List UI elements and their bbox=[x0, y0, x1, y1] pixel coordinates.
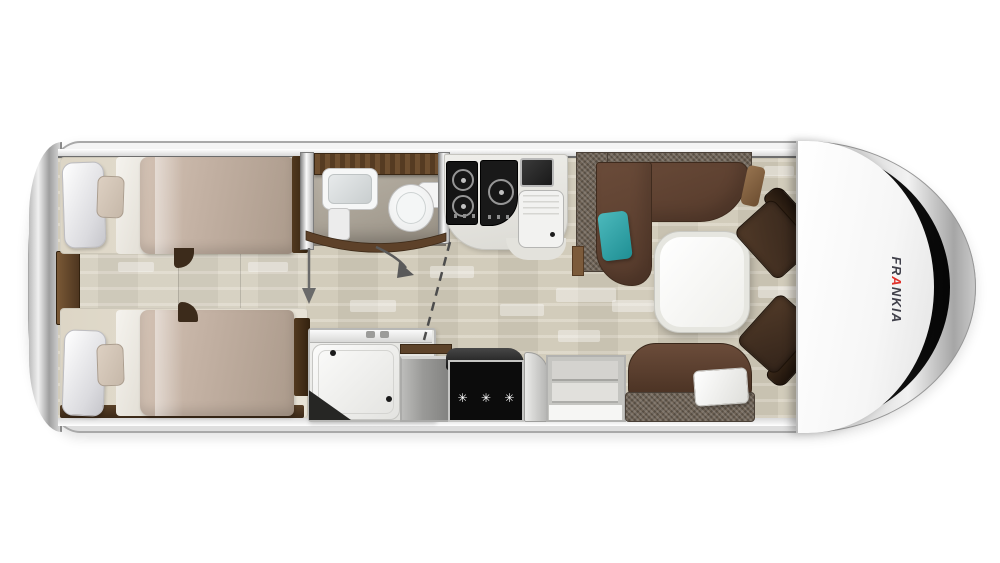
sink-drainboard bbox=[523, 195, 559, 217]
duvet-bottom-bed bbox=[140, 310, 294, 416]
shower-drain bbox=[386, 396, 392, 402]
wardrobe-cabinet bbox=[400, 356, 450, 422]
toilet-bowl bbox=[388, 184, 434, 232]
bathroom-sliding-door bbox=[300, 152, 314, 250]
logo-suffix: NKIA bbox=[889, 287, 904, 324]
floor-plank bbox=[556, 288, 616, 302]
floor-plank bbox=[350, 300, 396, 312]
accent-pillow-top-bed bbox=[96, 176, 124, 219]
cooktop-two-burner bbox=[446, 161, 478, 225]
step-tread bbox=[552, 383, 618, 403]
washbasin-bowl bbox=[328, 174, 372, 204]
duvet-top-bed bbox=[140, 157, 294, 254]
kitchen-sink bbox=[518, 190, 564, 248]
sofa-wood-side bbox=[572, 246, 584, 276]
logo-prefix: FR bbox=[889, 257, 904, 277]
table-top bbox=[660, 237, 744, 327]
shower-fitting bbox=[380, 331, 389, 338]
floor-plank bbox=[430, 266, 474, 278]
shower-fitting bbox=[366, 331, 375, 338]
teal-accent-cushion bbox=[597, 210, 633, 261]
step-tread bbox=[552, 361, 618, 381]
sink-drain bbox=[550, 232, 555, 237]
cooktop-knobs bbox=[488, 215, 512, 219]
cooktop-knobs bbox=[454, 214, 478, 218]
entry-step-housing bbox=[524, 352, 548, 422]
bench-pillow bbox=[693, 367, 749, 407]
floor-plank bbox=[558, 330, 600, 342]
floor-plank bbox=[612, 300, 654, 312]
floor-seam bbox=[240, 253, 241, 309]
dinette-table bbox=[654, 231, 750, 333]
step-tread bbox=[549, 405, 622, 420]
burner-icon bbox=[488, 179, 514, 205]
floor-plank bbox=[500, 304, 544, 316]
floor-plank bbox=[764, 166, 794, 176]
snowflake-stars-icon: ✳ ✳ ✳ bbox=[453, 377, 520, 405]
wood-trim-strip bbox=[400, 344, 452, 354]
shower-drain bbox=[330, 350, 336, 356]
accent-pillow-bottom-bed bbox=[96, 344, 124, 387]
motorhome-floorplan: ✳ ✳ ✳ FRANKIA bbox=[0, 0, 1000, 563]
washbasin-pedestal bbox=[328, 208, 350, 240]
burner-icon bbox=[452, 169, 474, 191]
fridge: ✳ ✳ ✳ bbox=[448, 360, 524, 422]
washbasin bbox=[322, 168, 378, 210]
brand-logo: FRANKIA bbox=[888, 248, 904, 332]
logo-accent-letter: A bbox=[889, 276, 904, 287]
sink-cover bbox=[520, 158, 554, 187]
